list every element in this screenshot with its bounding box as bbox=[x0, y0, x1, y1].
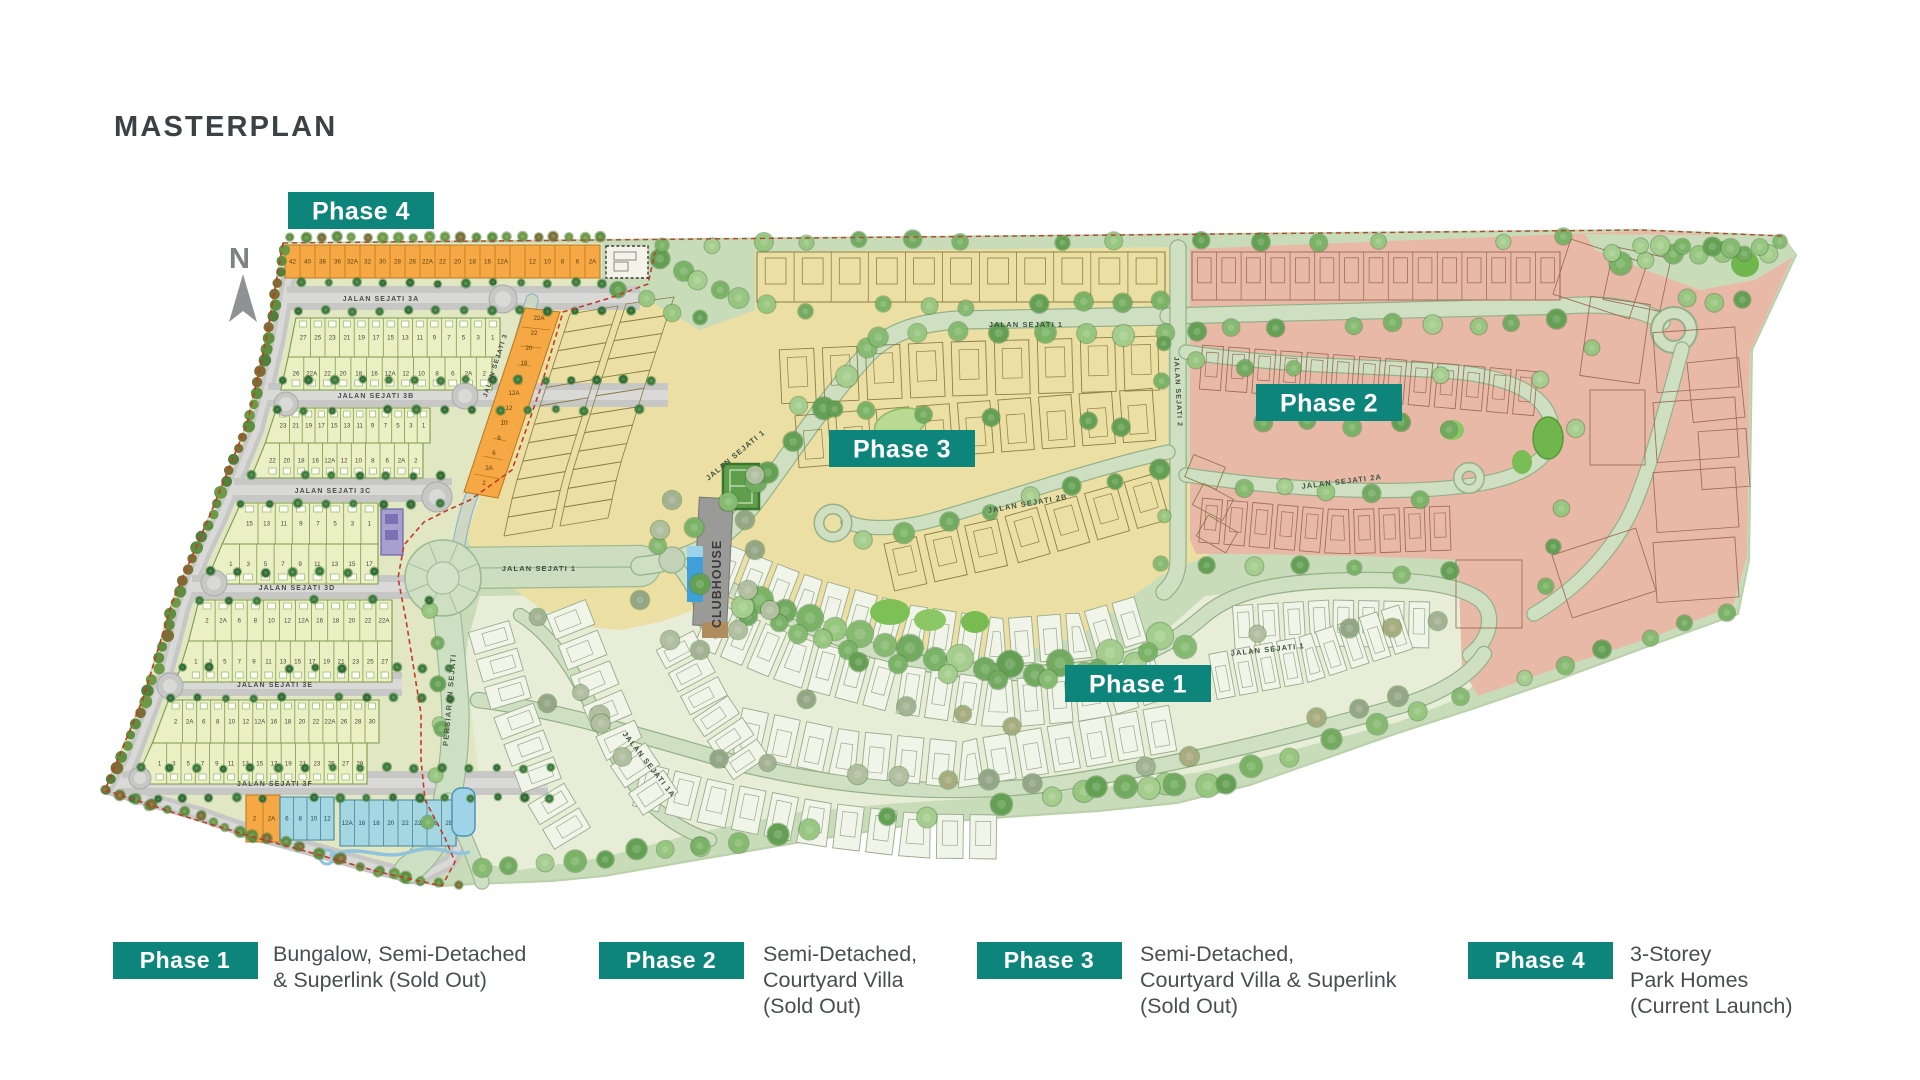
svg-text:9: 9 bbox=[371, 423, 375, 430]
svg-text:26: 26 bbox=[409, 259, 416, 266]
svg-text:Bungalow, Semi-Detached: Bungalow, Semi-Detached bbox=[273, 942, 526, 966]
svg-text:5: 5 bbox=[333, 521, 337, 528]
svg-text:16: 16 bbox=[270, 719, 277, 726]
svg-text:Courtyard Villa: Courtyard Villa bbox=[763, 968, 904, 992]
svg-text:26: 26 bbox=[340, 719, 347, 726]
svg-text:1: 1 bbox=[229, 561, 233, 568]
svg-text:9: 9 bbox=[252, 659, 256, 666]
svg-text:(Sold Out): (Sold Out) bbox=[763, 994, 861, 1018]
svg-text:JALAN SEJATI 3A: JALAN SEJATI 3A bbox=[343, 296, 420, 303]
svg-text:20: 20 bbox=[454, 259, 461, 266]
svg-text:7: 7 bbox=[316, 521, 320, 528]
svg-text:23: 23 bbox=[280, 423, 287, 430]
svg-text:28: 28 bbox=[394, 259, 401, 266]
svg-text:8: 8 bbox=[371, 458, 375, 465]
svg-text:9: 9 bbox=[433, 335, 437, 342]
svg-text:Park Homes: Park Homes bbox=[1630, 968, 1748, 992]
svg-text:20: 20 bbox=[340, 371, 347, 378]
svg-text:8: 8 bbox=[561, 259, 565, 266]
svg-text:22: 22 bbox=[402, 820, 409, 827]
svg-text:11: 11 bbox=[265, 659, 272, 666]
svg-text:8: 8 bbox=[298, 816, 302, 823]
svg-text:5: 5 bbox=[462, 335, 466, 342]
svg-text:25: 25 bbox=[314, 335, 321, 342]
svg-text:3: 3 bbox=[409, 423, 413, 430]
svg-text:2: 2 bbox=[253, 816, 257, 823]
svg-text:2A: 2A bbox=[589, 259, 597, 266]
svg-text:10: 10 bbox=[501, 420, 508, 427]
svg-text:25: 25 bbox=[367, 659, 374, 666]
svg-text:5: 5 bbox=[264, 561, 268, 568]
svg-text:5: 5 bbox=[396, 423, 400, 430]
svg-text:5: 5 bbox=[223, 659, 227, 666]
svg-text:13: 13 bbox=[343, 423, 350, 430]
svg-text:12A: 12A bbox=[298, 618, 310, 625]
svg-text:38: 38 bbox=[319, 259, 326, 266]
svg-text:28: 28 bbox=[355, 719, 362, 726]
svg-text:2A: 2A bbox=[485, 465, 493, 472]
svg-text:N: N bbox=[229, 243, 250, 275]
svg-text:19: 19 bbox=[285, 761, 292, 768]
svg-text:6: 6 bbox=[576, 259, 580, 266]
svg-text:10: 10 bbox=[544, 259, 551, 266]
svg-text:2A: 2A bbox=[398, 458, 406, 465]
svg-text:20: 20 bbox=[526, 345, 533, 352]
svg-text:21: 21 bbox=[343, 335, 350, 342]
svg-text:MASTERPLAN: MASTERPLAN bbox=[114, 111, 337, 143]
svg-text:17: 17 bbox=[318, 423, 325, 430]
svg-text:19: 19 bbox=[323, 659, 330, 666]
svg-text:9: 9 bbox=[215, 761, 219, 768]
svg-text:20: 20 bbox=[387, 820, 394, 827]
svg-text:2: 2 bbox=[482, 480, 486, 487]
svg-text:22A: 22A bbox=[324, 719, 336, 726]
svg-text:2: 2 bbox=[205, 618, 209, 625]
svg-text:3: 3 bbox=[351, 521, 355, 528]
svg-text:10: 10 bbox=[268, 618, 275, 625]
svg-text:16: 16 bbox=[312, 458, 319, 465]
svg-text:30: 30 bbox=[379, 259, 386, 266]
svg-text:Phase 2: Phase 2 bbox=[626, 947, 716, 973]
svg-text:15: 15 bbox=[294, 659, 301, 666]
svg-text:2: 2 bbox=[482, 371, 486, 378]
svg-text:22: 22 bbox=[269, 458, 276, 465]
svg-text:1: 1 bbox=[491, 335, 495, 342]
svg-text:23: 23 bbox=[352, 659, 359, 666]
svg-text:18: 18 bbox=[298, 458, 305, 465]
svg-text:26: 26 bbox=[293, 371, 300, 378]
svg-text:Phase 3: Phase 3 bbox=[1004, 947, 1094, 973]
svg-text:3: 3 bbox=[476, 335, 480, 342]
svg-text:12: 12 bbox=[529, 259, 536, 266]
svg-text:2A: 2A bbox=[268, 816, 276, 823]
svg-text:12: 12 bbox=[506, 405, 513, 412]
svg-text:JALAN SEJATI 1: JALAN SEJATI 1 bbox=[502, 564, 576, 573]
svg-text:22: 22 bbox=[364, 618, 371, 625]
svg-text:19: 19 bbox=[358, 335, 365, 342]
svg-text:27: 27 bbox=[300, 335, 307, 342]
svg-text:18: 18 bbox=[284, 719, 291, 726]
svg-text:32A: 32A bbox=[347, 259, 359, 266]
svg-text:Phase 2: Phase 2 bbox=[1280, 390, 1378, 418]
svg-text:9: 9 bbox=[298, 561, 302, 568]
svg-text:6: 6 bbox=[451, 371, 455, 378]
svg-text:12: 12 bbox=[402, 371, 409, 378]
svg-text:22: 22 bbox=[531, 330, 538, 337]
svg-text:JALAN SEJATI 3F: JALAN SEJATI 3F bbox=[237, 781, 313, 788]
svg-text:12A: 12A bbox=[254, 719, 266, 726]
svg-text:18: 18 bbox=[469, 259, 476, 266]
svg-text:1: 1 bbox=[368, 521, 372, 528]
svg-text:6: 6 bbox=[285, 816, 289, 823]
svg-text:12A: 12A bbox=[497, 259, 509, 266]
svg-text:11: 11 bbox=[228, 761, 235, 768]
svg-text:10: 10 bbox=[418, 371, 425, 378]
svg-text:13: 13 bbox=[280, 659, 287, 666]
svg-text:19: 19 bbox=[305, 423, 312, 430]
svg-text:21: 21 bbox=[292, 423, 299, 430]
svg-text:Phase 1: Phase 1 bbox=[140, 947, 230, 973]
svg-text:13: 13 bbox=[263, 521, 270, 528]
svg-text:22A: 22A bbox=[378, 618, 390, 625]
svg-text:42: 42 bbox=[289, 259, 296, 266]
svg-text:20: 20 bbox=[298, 719, 305, 726]
svg-text:15: 15 bbox=[331, 423, 338, 430]
svg-text:22A: 22A bbox=[422, 259, 434, 266]
svg-text:20: 20 bbox=[283, 458, 290, 465]
svg-text:6: 6 bbox=[492, 450, 496, 457]
svg-text:8: 8 bbox=[497, 435, 501, 442]
svg-text:22: 22 bbox=[439, 259, 446, 266]
svg-text:CLUBHOUSE: CLUBHOUSE bbox=[710, 540, 724, 628]
svg-text:16: 16 bbox=[484, 259, 491, 266]
svg-text:17: 17 bbox=[373, 335, 380, 342]
svg-text:1: 1 bbox=[158, 761, 162, 768]
svg-text:15: 15 bbox=[349, 561, 356, 568]
svg-text:15: 15 bbox=[256, 761, 263, 768]
svg-text:8: 8 bbox=[216, 719, 220, 726]
svg-text:7: 7 bbox=[447, 335, 451, 342]
svg-text:22: 22 bbox=[324, 371, 331, 378]
svg-text:16: 16 bbox=[371, 371, 378, 378]
svg-text:(Sold Out): (Sold Out) bbox=[1140, 994, 1238, 1018]
svg-text:15: 15 bbox=[246, 521, 253, 528]
svg-text:JALAN SEJATI 3E: JALAN SEJATI 3E bbox=[237, 682, 313, 689]
svg-text:11: 11 bbox=[356, 423, 363, 430]
svg-text:2A: 2A bbox=[219, 618, 227, 625]
svg-text:18: 18 bbox=[373, 820, 380, 827]
svg-text:JALAN SEJATI 3D: JALAN SEJATI 3D bbox=[259, 585, 336, 592]
svg-text:16: 16 bbox=[358, 820, 365, 827]
svg-text:18: 18 bbox=[332, 618, 339, 625]
svg-text:9: 9 bbox=[299, 521, 303, 528]
svg-text:10: 10 bbox=[228, 719, 235, 726]
svg-text:16: 16 bbox=[316, 618, 323, 625]
svg-text:30: 30 bbox=[369, 719, 376, 726]
svg-text:23: 23 bbox=[329, 335, 336, 342]
svg-text:13: 13 bbox=[331, 561, 338, 568]
svg-text:6: 6 bbox=[385, 458, 389, 465]
svg-text:& Superlink (Sold Out): & Superlink (Sold Out) bbox=[273, 968, 487, 992]
svg-text:12: 12 bbox=[242, 719, 249, 726]
svg-text:2: 2 bbox=[414, 458, 418, 465]
svg-text:(Current Launch): (Current Launch) bbox=[1630, 994, 1793, 1018]
svg-text:13: 13 bbox=[402, 335, 409, 342]
svg-text:20: 20 bbox=[348, 618, 355, 625]
svg-text:Courtyard Villa & Superlink: Courtyard Villa & Superlink bbox=[1140, 968, 1397, 992]
svg-text:1: 1 bbox=[422, 423, 426, 430]
svg-text:5: 5 bbox=[186, 761, 190, 768]
svg-text:1: 1 bbox=[194, 659, 198, 666]
svg-text:JALAN SEJATI 3C: JALAN SEJATI 3C bbox=[295, 488, 372, 495]
svg-text:18: 18 bbox=[521, 360, 528, 367]
svg-text:Semi-Detached,: Semi-Detached, bbox=[1140, 942, 1294, 966]
svg-text:15: 15 bbox=[387, 335, 394, 342]
svg-text:22A: 22A bbox=[533, 315, 545, 322]
svg-text:22: 22 bbox=[312, 719, 319, 726]
svg-text:12A: 12A bbox=[508, 390, 520, 397]
svg-text:10: 10 bbox=[355, 458, 362, 465]
svg-text:11: 11 bbox=[280, 521, 287, 528]
svg-text:6: 6 bbox=[202, 719, 206, 726]
svg-text:8: 8 bbox=[254, 618, 258, 625]
svg-text:7: 7 bbox=[281, 561, 285, 568]
svg-text:7: 7 bbox=[238, 659, 242, 666]
svg-text:12: 12 bbox=[341, 458, 348, 465]
svg-text:Phase 4: Phase 4 bbox=[1495, 947, 1585, 973]
svg-text:7: 7 bbox=[384, 423, 388, 430]
svg-text:3: 3 bbox=[246, 561, 250, 568]
svg-text:12: 12 bbox=[284, 618, 291, 625]
svg-text:3-Storey: 3-Storey bbox=[1630, 942, 1712, 966]
svg-text:2: 2 bbox=[174, 719, 178, 726]
svg-text:Phase 1: Phase 1 bbox=[1089, 671, 1187, 699]
svg-text:23: 23 bbox=[313, 761, 320, 768]
svg-text:6: 6 bbox=[237, 618, 241, 625]
svg-text:36: 36 bbox=[334, 259, 341, 266]
svg-text:Semi-Detached,: Semi-Detached, bbox=[763, 942, 917, 966]
svg-text:JALAN SEJATI 3B: JALAN SEJATI 3B bbox=[338, 393, 415, 400]
svg-text:27: 27 bbox=[381, 659, 388, 666]
svg-text:40: 40 bbox=[304, 259, 311, 266]
svg-text:JALAN SEJATI 1: JALAN SEJATI 1 bbox=[989, 320, 1063, 329]
svg-text:12A: 12A bbox=[342, 820, 354, 827]
svg-text:10: 10 bbox=[310, 816, 317, 823]
svg-text:32: 32 bbox=[364, 259, 371, 266]
svg-text:2A: 2A bbox=[186, 719, 194, 726]
svg-text:12A: 12A bbox=[324, 458, 336, 465]
svg-text:27: 27 bbox=[342, 761, 349, 768]
svg-text:11: 11 bbox=[417, 335, 424, 342]
svg-text:12: 12 bbox=[324, 816, 331, 823]
svg-text:Phase 3: Phase 3 bbox=[853, 436, 951, 464]
svg-text:Phase 4: Phase 4 bbox=[312, 198, 410, 226]
